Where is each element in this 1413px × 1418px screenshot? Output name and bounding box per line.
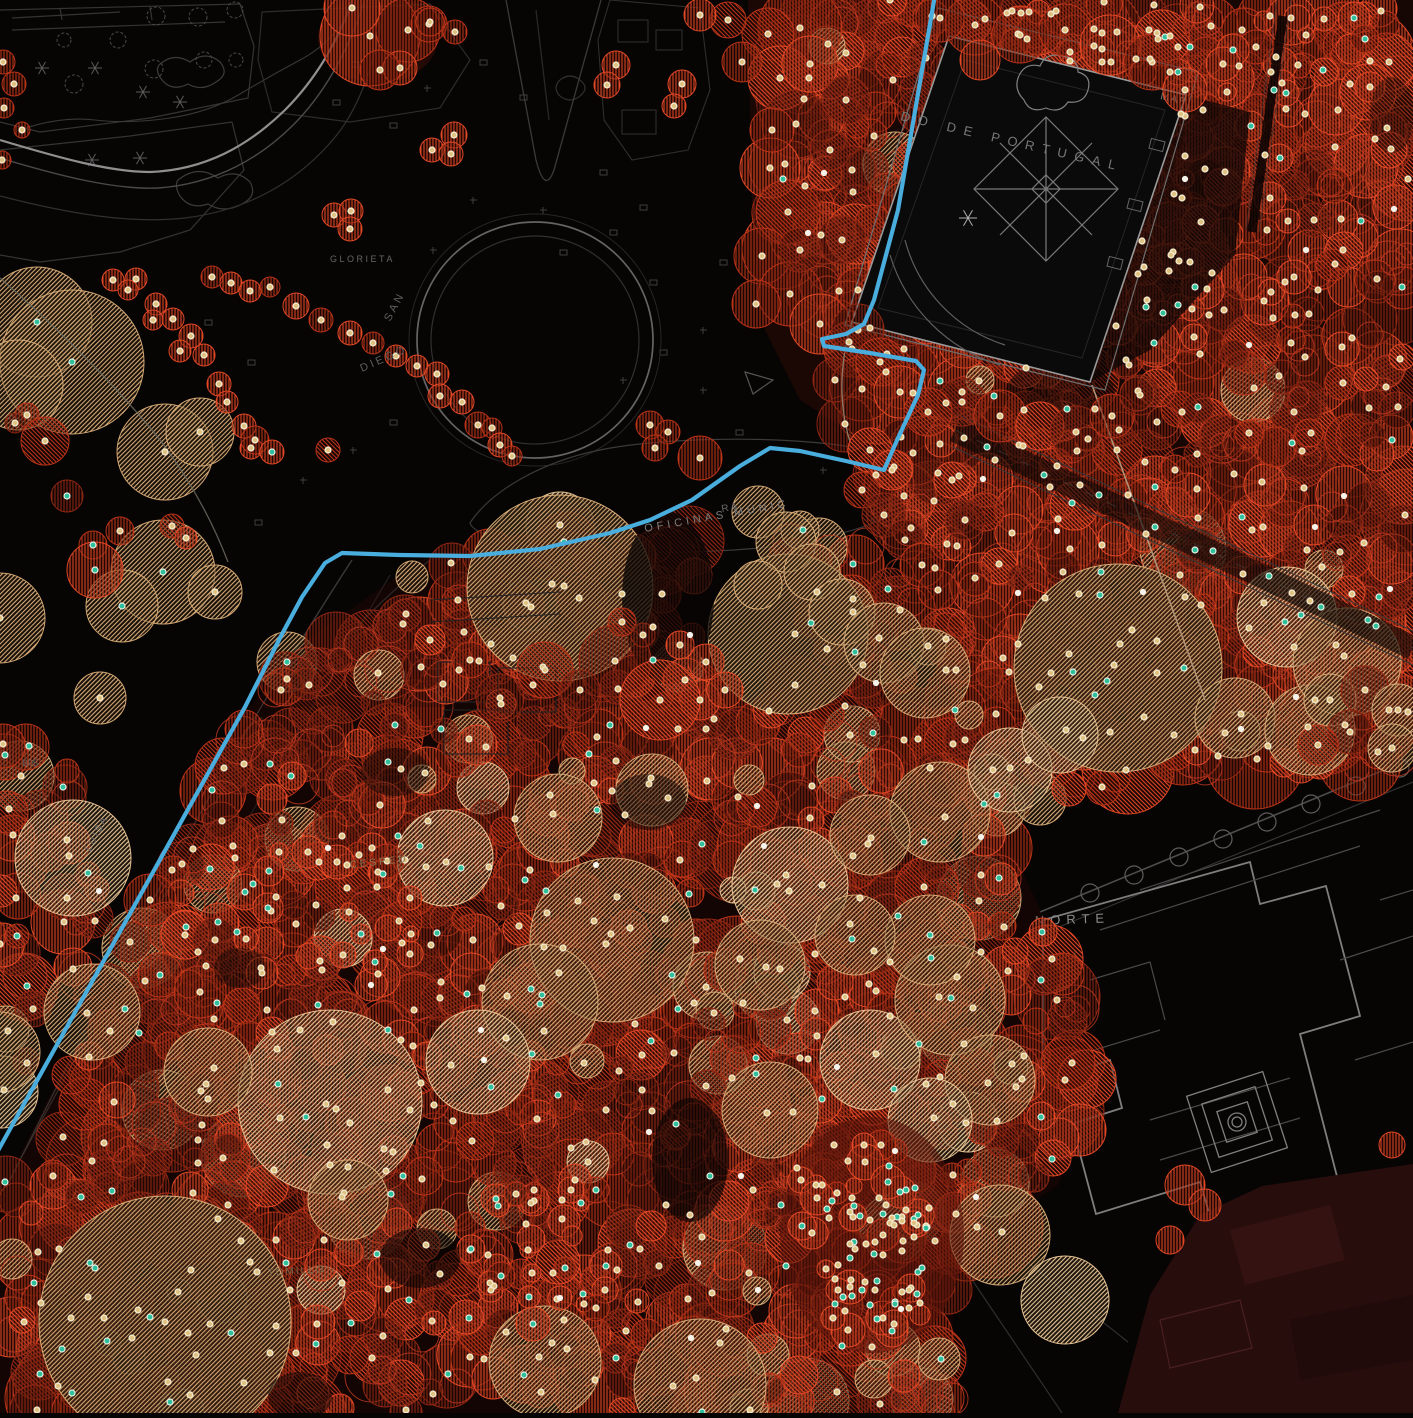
svg-text:B05: B05 xyxy=(22,758,38,768)
svg-text:GLORIETA: GLORIETA xyxy=(330,254,395,264)
